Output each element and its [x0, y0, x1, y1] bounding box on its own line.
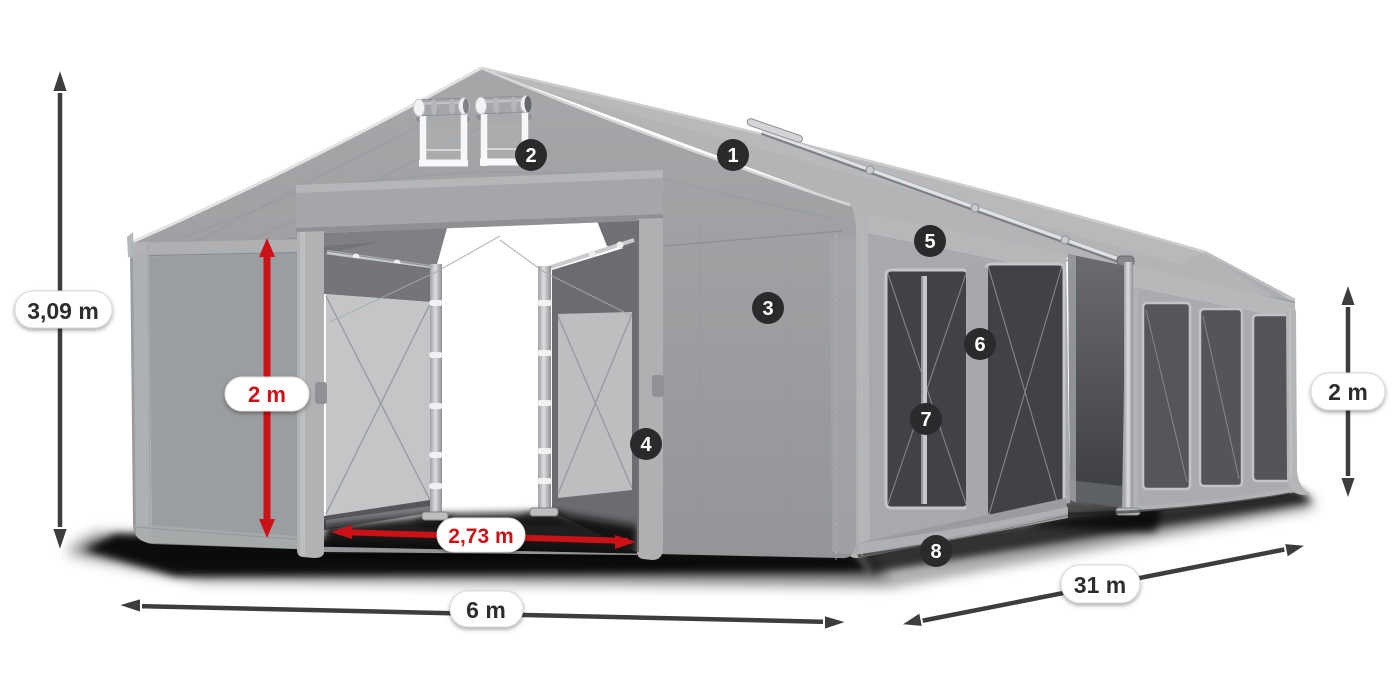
svg-text:6: 6	[974, 334, 985, 356]
svg-text:31 m: 31 m	[1074, 572, 1126, 598]
svg-text:2 m: 2 m	[1328, 379, 1368, 405]
svg-text:6 m: 6 m	[466, 597, 506, 623]
svg-text:7: 7	[920, 409, 931, 431]
svg-text:2,73 m: 2,73 m	[448, 525, 513, 548]
svg-text:3: 3	[762, 298, 773, 320]
svg-text:2: 2	[525, 145, 536, 167]
svg-text:5: 5	[924, 231, 935, 253]
svg-text:2 m: 2 m	[248, 382, 286, 407]
svg-text:1: 1	[727, 145, 738, 167]
svg-text:8: 8	[930, 541, 941, 563]
svg-text:3,09 m: 3,09 m	[27, 298, 99, 324]
svg-text:4: 4	[640, 434, 652, 456]
